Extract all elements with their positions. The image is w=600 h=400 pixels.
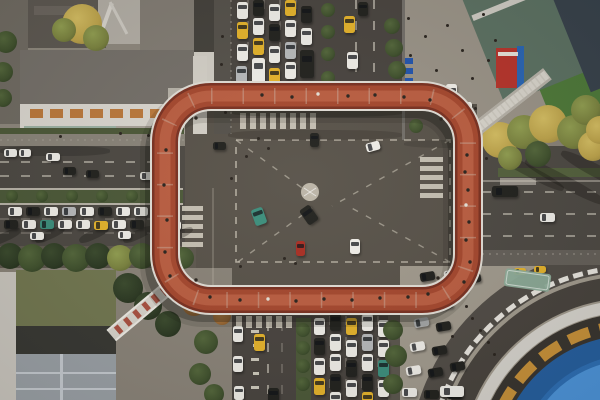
bridge-pedestrian-dot (266, 297, 269, 300)
bridge-pedestrian-dot (165, 218, 168, 221)
bridge-pedestrian-dot (467, 220, 470, 223)
bridge-pedestrian-dot (426, 292, 429, 295)
bridge-pedestrian-dot (238, 298, 241, 301)
bridge-pedestrian-dot (290, 95, 293, 98)
bridge-pedestrian-dot (208, 295, 211, 298)
bridge-ring-deck (165, 96, 468, 300)
bridge-pedestrian-dot (462, 280, 465, 283)
bridge-pedestrian-dot (466, 188, 469, 191)
bridge-pedestrian-dot (168, 274, 171, 277)
bridge-ramp-ne (471, 68, 552, 136)
bridge-ring-deck (157, 106, 460, 310)
bridge-pedestrian-dot (373, 93, 376, 96)
bridge-ring-deck (165, 96, 468, 300)
bridge-pedestrian-dot (162, 183, 165, 186)
bridge-ring-deck (157, 106, 460, 310)
pedestrian-bridge-layer (0, 0, 600, 400)
bridge-pedestrian-dot (406, 295, 409, 298)
bridge-pedestrian-dot (350, 298, 353, 301)
bridge-pedestrian-dot (194, 116, 197, 119)
bridge-pedestrian-dot (463, 170, 466, 173)
bridge-ring-deck (165, 96, 468, 300)
bridge-pedestrian-dot (439, 117, 442, 120)
bridge-pedestrian-dot (164, 148, 167, 151)
bridge-ring-deck (165, 96, 468, 300)
bridge-pedestrian-dot (163, 250, 166, 253)
bridge-ring-deck (165, 96, 468, 300)
bridge-pedestrian-dot (464, 238, 467, 241)
bridge-pedestrian-dot (316, 92, 319, 95)
bridge-pedestrian-dot (260, 93, 263, 96)
bridge-pedestrian-dot (194, 278, 197, 281)
bridge-pedestrian-dot (468, 260, 471, 263)
bridge-pedestrian-dot (464, 203, 467, 206)
bridge-pedestrian-dot (346, 94, 349, 97)
aerial-photo-intersection (0, 0, 600, 400)
bridge-pedestrian-dot (428, 98, 431, 101)
bridge-pedestrian-dot (378, 296, 381, 299)
bridge-pedestrian-dot (402, 95, 405, 98)
bridge-pedestrian-dot (436, 276, 439, 279)
bridge-pedestrian-dot (465, 153, 468, 156)
bridge-pedestrian-dot (294, 299, 297, 302)
entrance-canopy-se (503, 268, 551, 292)
bridge-pedestrian-dot (322, 297, 325, 300)
